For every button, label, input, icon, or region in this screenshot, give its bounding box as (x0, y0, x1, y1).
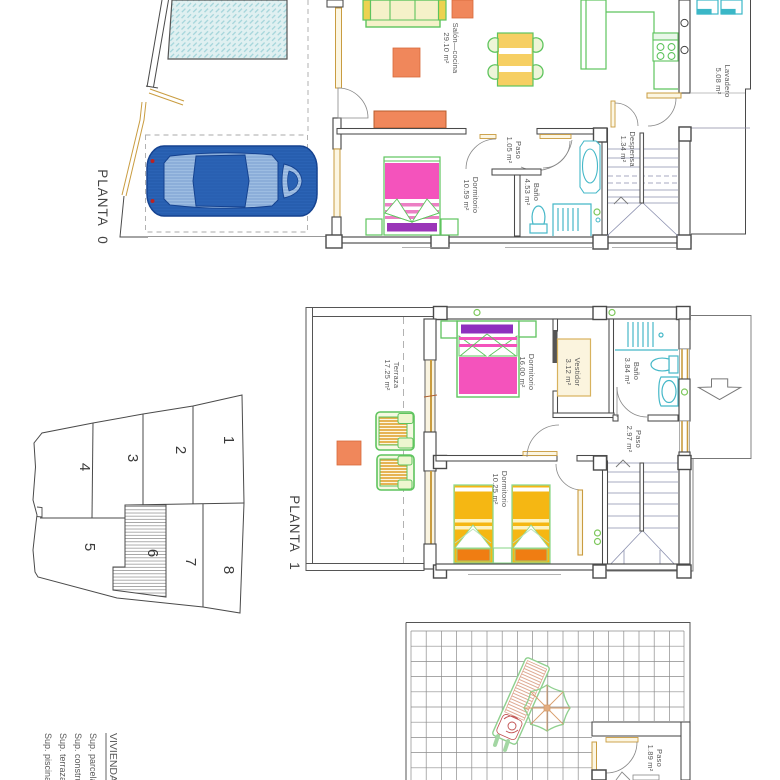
svg-text:3.12 m²: 3.12 m² (564, 359, 573, 386)
svg-text:3: 3 (124, 454, 141, 462)
svg-text:5.08 m²: 5.08 m² (714, 68, 723, 95)
svg-text:6: 6 (144, 549, 161, 557)
svg-text:Vestidor: Vestidor (573, 358, 582, 387)
svg-text:VIVIENDA 1: VIVIENDA 1 (107, 733, 119, 780)
svg-text:3.84 m²: 3.84 m² (623, 358, 632, 385)
svg-text:Sup. terraza: Sup. terraza (58, 733, 68, 780)
svg-text:Terraza: Terraza (392, 362, 401, 389)
svg-text:Dormitorio: Dormitorio (471, 177, 480, 214)
svg-text:Sup. piscina: Sup. piscina (43, 733, 53, 780)
svg-text:29.10 m²: 29.10 m² (442, 32, 451, 63)
svg-text:PLANTA 1: PLANTA 1 (287, 495, 302, 571)
svg-text:10.59 m²: 10.59 m² (462, 179, 471, 210)
svg-text:16.00 m²: 16.00 m² (518, 356, 527, 387)
svg-text:Despensa: Despensa (628, 131, 637, 167)
svg-text:1: 1 (220, 436, 237, 444)
svg-text:Dormitorio: Dormitorio (500, 471, 509, 508)
svg-text:10.25 m²: 10.25 m² (491, 473, 500, 504)
svg-text:Baño: Baño (632, 362, 641, 380)
svg-text:Sup. construida: Sup. construida (73, 733, 83, 780)
svg-text:Paso: Paso (514, 141, 523, 159)
svg-text:PLANTA 0: PLANTA 0 (95, 169, 110, 245)
svg-text:Sup. parcela: Sup. parcela (88, 733, 98, 780)
svg-text:Paso: Paso (634, 430, 643, 448)
svg-text:1.34 m²: 1.34 m² (619, 136, 628, 163)
svg-text:2.97 m²: 2.97 m² (625, 426, 634, 453)
svg-text:5: 5 (81, 543, 98, 551)
svg-text:Salón—cocina: Salón—cocina (451, 23, 460, 74)
svg-text:4.53 m²: 4.53 m² (523, 179, 532, 206)
svg-text:Paso: Paso (655, 749, 664, 767)
svg-text:17.25 m²: 17.25 m² (383, 359, 392, 390)
svg-text:1.89 m²: 1.89 m² (646, 745, 655, 772)
svg-text:2: 2 (172, 446, 189, 454)
svg-text:4: 4 (76, 463, 93, 471)
svg-text:1.05 m²: 1.05 m² (505, 137, 514, 164)
svg-text:Baño: Baño (532, 183, 541, 201)
svg-text:Dormitorio: Dormitorio (527, 354, 536, 391)
svg-text:Lavadero: Lavadero (723, 65, 732, 98)
svg-text:7: 7 (182, 558, 199, 566)
svg-text:8: 8 (220, 566, 237, 574)
